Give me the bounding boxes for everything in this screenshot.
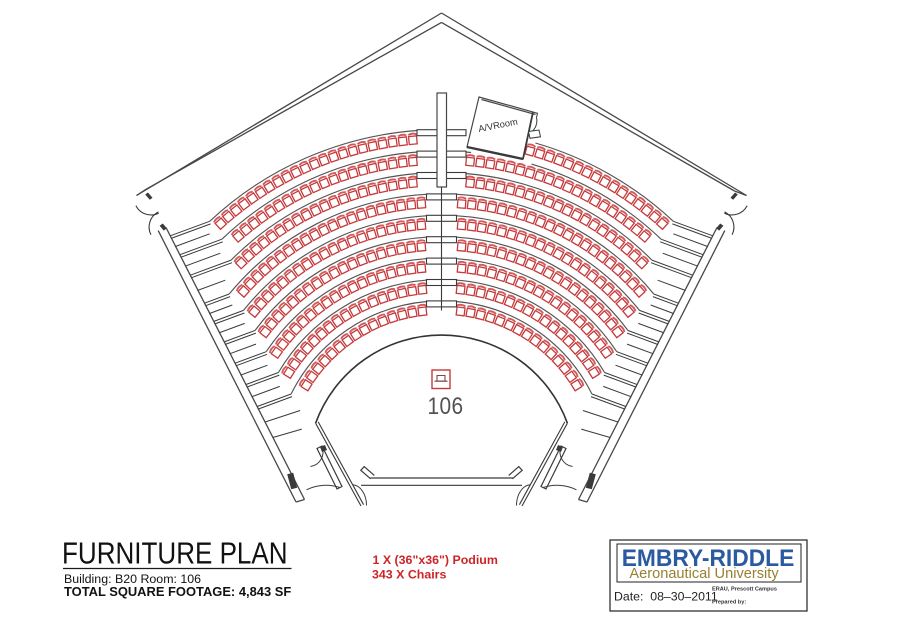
svg-text:ERAU, Prescott Campus: ERAU, Prescott Campus xyxy=(712,587,777,593)
svg-text:Prepared by:: Prepared by: xyxy=(712,600,746,606)
svg-text:1 X (36"x36") Podium: 1 X (36"x36") Podium xyxy=(373,553,498,567)
svg-text:343 X Chairs: 343 X Chairs xyxy=(372,567,446,581)
svg-text:FURNITURE PLAN: FURNITURE PLAN xyxy=(62,536,288,571)
svg-text:106: 106 xyxy=(427,393,463,420)
svg-text:TOTAL SQUARE FOOTAGE: 4,843 SF: TOTAL SQUARE FOOTAGE: 4,843 SF xyxy=(64,584,291,599)
svg-text:Date: 08–30–2011: Date: 08–30–2011 xyxy=(614,590,718,604)
svg-text:Aeronautical University: Aeronautical University xyxy=(629,566,779,582)
